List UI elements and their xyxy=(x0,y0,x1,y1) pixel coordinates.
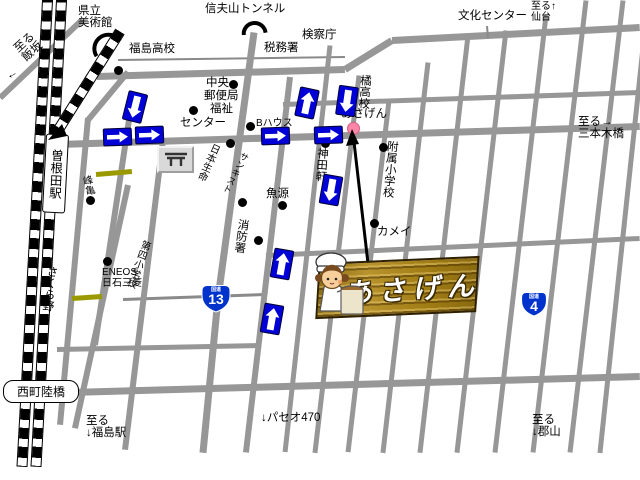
map-label-soneda-station: 曽根田駅 xyxy=(42,133,69,213)
map-label-nihon-seimei: 日本生命 xyxy=(194,141,220,182)
route-badge-number: 13 xyxy=(199,291,233,307)
poi-dot xyxy=(370,219,379,228)
poi-dot xyxy=(226,139,235,148)
map-label-fukushima-highschool: 福島高校 xyxy=(129,43,175,55)
poi-dot xyxy=(278,201,287,210)
direction-arrow-right xyxy=(314,125,344,144)
direction-arrow-down xyxy=(335,85,359,117)
route-badge-13: 国道13 xyxy=(199,283,233,314)
map-label-uogen: 魚源 xyxy=(266,188,289,200)
map-label-fukushi: 福祉 xyxy=(210,103,233,115)
poi-dot xyxy=(189,106,198,115)
poi-dot xyxy=(246,122,255,131)
map-label-center: センター xyxy=(180,117,226,129)
poi-dot xyxy=(114,66,123,75)
direction-arrow-right xyxy=(103,127,133,146)
poi-dot xyxy=(238,198,247,207)
poi-dot xyxy=(86,196,95,205)
map-label-tachibana-highschool: 橘高校 xyxy=(357,74,372,109)
road-segment xyxy=(392,24,640,44)
poi-dot xyxy=(379,143,388,152)
direction-arrow-right xyxy=(261,126,291,145)
poi-dot xyxy=(103,257,112,266)
map-label-prosecutors-office: 検察庁 xyxy=(302,29,337,41)
road-segment xyxy=(57,343,260,352)
road-segment xyxy=(200,298,222,453)
gate-icon xyxy=(157,146,194,173)
map-label-shinobuyama-tunnel: 信夫山トンネル xyxy=(205,3,285,15)
map-label-culture-center: 文化センター xyxy=(458,10,527,22)
poi-dot xyxy=(254,236,263,245)
map-label-fire-station: 消防署 xyxy=(232,218,249,254)
crossing-bar xyxy=(96,169,132,177)
route-badge-number: 4 xyxy=(519,298,549,314)
map-label-paseo470: ↓パセオ470 xyxy=(261,412,320,424)
road-segment xyxy=(118,56,345,61)
direction-arrow-down xyxy=(319,173,344,206)
map-label-chuo: 中央 xyxy=(206,77,229,89)
map-label-to-fukushima-station: 至る ↓福島駅 xyxy=(86,415,126,440)
road-segment xyxy=(237,32,258,136)
crossing-bar xyxy=(72,294,102,301)
poi-dot xyxy=(229,80,238,89)
direction-arrow-up xyxy=(260,302,285,335)
map-label-kamei: カメイ xyxy=(377,226,412,238)
map-label-pref-art-museum: 県立 美術館 xyxy=(78,5,113,30)
direction-arrow-right xyxy=(135,125,165,144)
access-map: あさげん 県立 美術館信夫山トンネル検察庁税務署文化センター至る↑ 仙台福島高校… xyxy=(0,0,640,480)
map-label-nishimachi-overpass: 西町陸橋 xyxy=(3,380,79,403)
map-label-to-sendai: 至る↑ 仙台 xyxy=(531,2,556,24)
road-segment xyxy=(343,37,394,72)
route-badge-4: 国道4 xyxy=(519,290,549,318)
direction-arrow-up xyxy=(294,86,320,120)
map-label-post-office: 郵便局 xyxy=(204,90,239,102)
road-segment xyxy=(598,0,640,452)
map-label-to-sanbongi-bridge: 至る→ 三本木橋 xyxy=(578,116,624,141)
cook-character-icon xyxy=(304,250,368,320)
tunnel-arc xyxy=(240,20,267,36)
direction-arrow-up xyxy=(270,247,295,280)
map-label-tax-office: 税務署 xyxy=(264,42,299,54)
road-segment xyxy=(486,26,489,38)
direction-arrow-down xyxy=(122,90,149,124)
asagen-location-dot xyxy=(347,122,360,135)
map-label-to-koriyama: 至る ↓郡山 xyxy=(532,414,561,439)
